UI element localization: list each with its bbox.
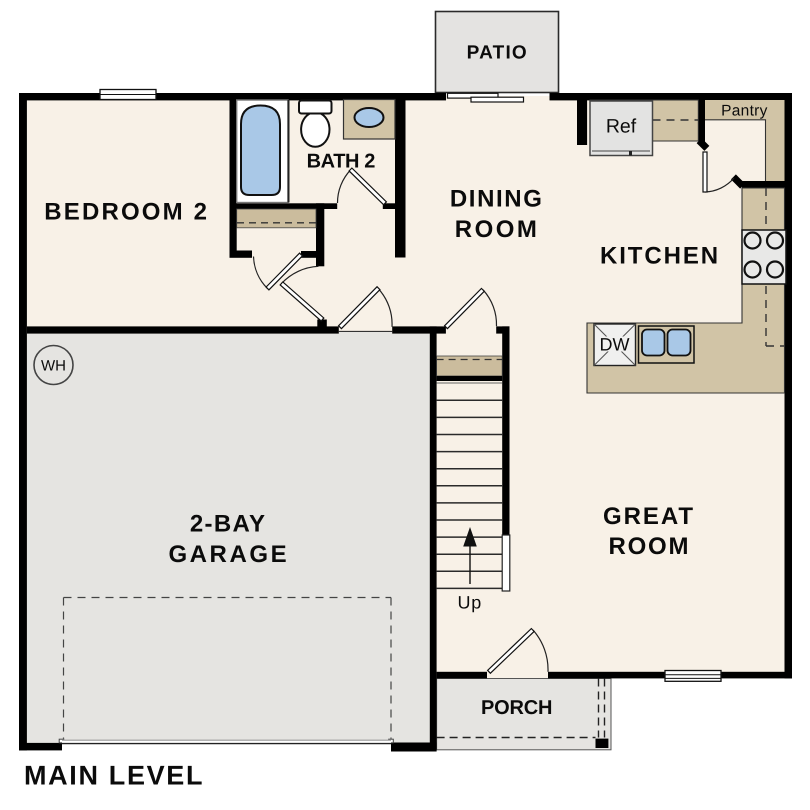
svg-text:ROOM: ROOM bbox=[455, 216, 540, 243]
svg-text:Pantry: Pantry bbox=[721, 103, 768, 120]
svg-text:ROOM: ROOM bbox=[608, 533, 690, 560]
svg-text:KITCHEN: KITCHEN bbox=[600, 242, 720, 269]
svg-text:GREAT: GREAT bbox=[603, 503, 695, 530]
svg-text:BEDROOM 2: BEDROOM 2 bbox=[44, 199, 209, 226]
svg-text:Up: Up bbox=[457, 593, 482, 613]
svg-text:DINING: DINING bbox=[450, 185, 544, 212]
svg-text:Ref: Ref bbox=[606, 116, 637, 138]
svg-text:PORCH: PORCH bbox=[481, 697, 552, 719]
svg-text:DW: DW bbox=[600, 335, 630, 355]
svg-text:GARAGE: GARAGE bbox=[168, 541, 289, 568]
svg-text:PATIO: PATIO bbox=[467, 42, 528, 63]
svg-text:BATH 2: BATH 2 bbox=[307, 151, 376, 173]
svg-text:2-BAY: 2-BAY bbox=[190, 510, 267, 537]
svg-text:MAIN LEVEL: MAIN LEVEL bbox=[24, 760, 204, 790]
svg-text:WH: WH bbox=[41, 358, 66, 375]
